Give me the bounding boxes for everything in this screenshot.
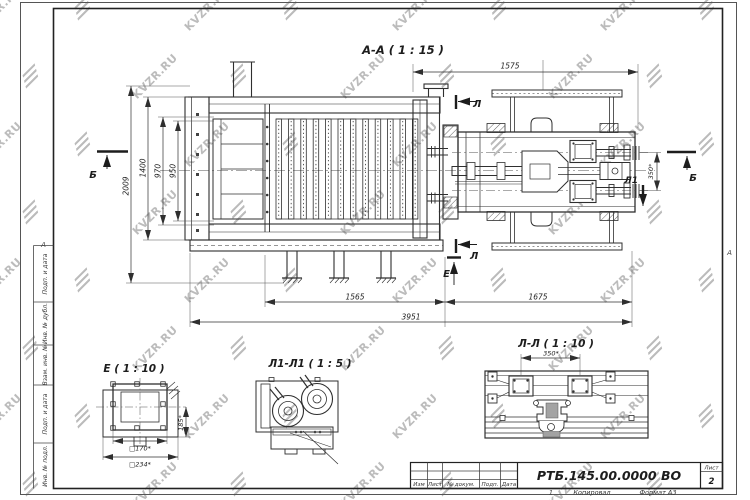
stamp-label-inv-podl: Инв. № подл.	[42, 445, 49, 486]
detail-ll	[485, 354, 648, 438]
dim-3951: 3951	[401, 313, 420, 322]
footer-format: Формат А3	[639, 489, 676, 497]
furnace-body	[185, 62, 448, 283]
dim-1575: 1575	[500, 62, 519, 71]
dim-1400: 1400	[139, 158, 148, 177]
footer-note: 1	[549, 489, 553, 497]
tb-col-podp: Подп.	[482, 482, 499, 488]
marker-l-top: Л	[472, 99, 482, 110]
marker-l1: Л1	[623, 176, 638, 186]
stamp-label-inv-dubl: Инв. № дубл.	[42, 303, 49, 344]
detail-ll-title: Л-Л ( 1 : 10 )	[517, 338, 594, 350]
dim-950: 950	[169, 164, 178, 179]
detail-l1	[256, 375, 338, 464]
dim-1675: 1675	[528, 293, 547, 302]
footer-copy: Копировал	[573, 489, 610, 497]
sheet-number: 2	[709, 477, 715, 487]
stamp-label-vzam-inv: Взам. инв. №	[42, 345, 49, 386]
marker-l-bottom: Л	[469, 251, 479, 262]
dim-1565: 1565	[345, 293, 364, 302]
stamp-label-podp-data-1: Подп. и дата	[42, 253, 49, 294]
stamp-label-podp-data-2: Подп. и дата	[42, 393, 49, 434]
tb-col-data: Дата	[501, 482, 517, 488]
tb-col-docnum: № докум.	[446, 482, 475, 488]
marker-b-left: Б	[89, 170, 97, 181]
dim-185: 185*	[177, 414, 185, 430]
detail-e-title: Е ( 1 : 10 )	[103, 363, 164, 375]
marker-e: Е	[443, 269, 450, 280]
section-title-aa: А-А ( 1 : 15 )	[361, 43, 444, 57]
support-legs	[282, 251, 396, 283]
tb-col-izm: Изм	[413, 482, 425, 488]
dim-170: □170*	[129, 445, 152, 453]
marker-b-right: Б	[689, 173, 697, 184]
drawing-svg: Подп. и дата Инв. № дубл. Взам. инв. № П…	[0, 0, 750, 500]
dim-970: 970	[154, 164, 163, 179]
drawing-sheet: KVZR.RUKVZR.RUKVZR.RUKVZR.RUKVZR.RUKVZR.…	[0, 0, 750, 500]
drum-body	[443, 90, 648, 250]
zone-marker-right: А	[726, 249, 732, 257]
tube-bank	[276, 119, 418, 219]
doc-number: РТБ.145.00.0000 ВО	[537, 468, 682, 483]
sheet-label: Лист	[703, 466, 719, 472]
dim-2009: 2009	[122, 176, 131, 195]
dim-350-main: 350*	[647, 163, 655, 179]
dim-234: □234*	[129, 461, 152, 469]
dim-350-ll: 350*	[543, 350, 559, 358]
zone-marker-left: А	[40, 241, 46, 249]
tb-col-list: Лист	[427, 482, 443, 488]
detail-l1-title: Л1-Л1 ( 1 : 5 )	[267, 358, 351, 370]
